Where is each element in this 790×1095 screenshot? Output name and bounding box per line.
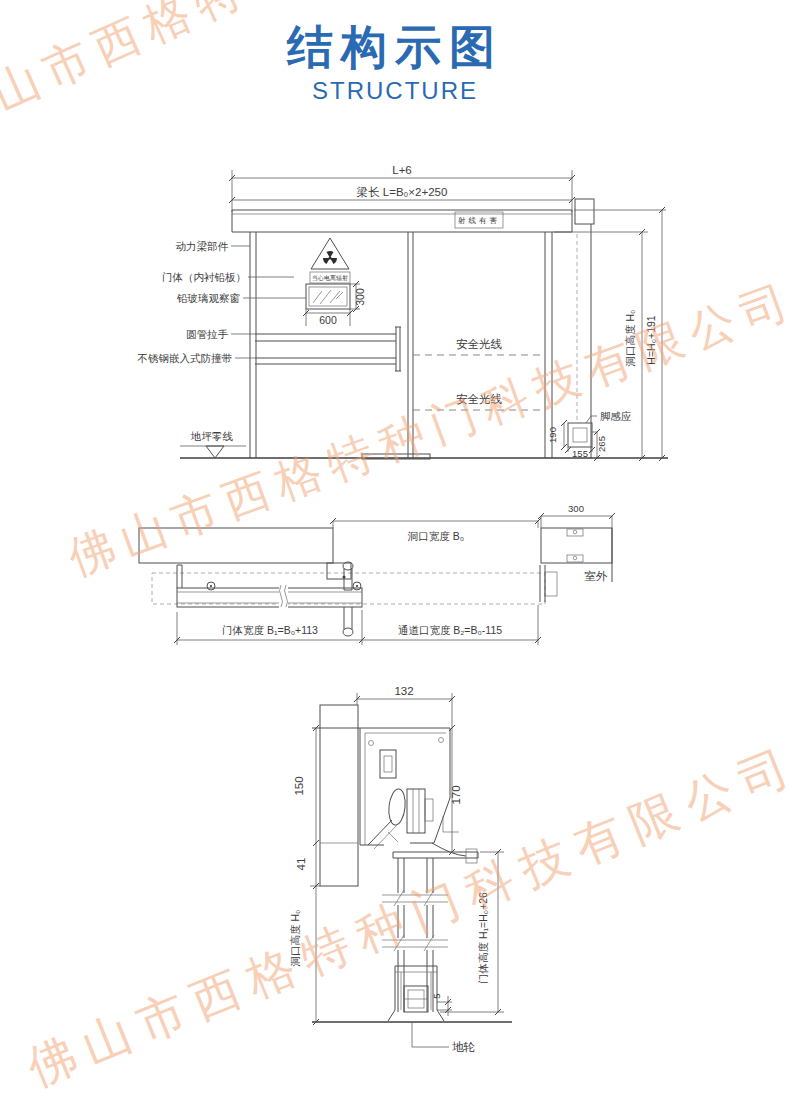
handle-label: 圆管拉手 [186,328,229,340]
page-subtitle: STRUCTURE [0,77,790,105]
dim-lintel-overlap: 41 [295,858,307,871]
dim-track-depth: 132 [394,685,413,697]
dim-floor-gap: 5 [431,993,442,998]
dim-opening-width: 洞口宽度 B₀ [407,530,464,542]
dim-passage-width: 通道口宽度 B₂=B₀-115 [398,624,502,636]
level-marker-icon [206,446,224,458]
floor-wheel-label: 地轮 [452,1041,476,1053]
wall-section [320,705,358,886]
guide-bolt-lower [343,607,353,636]
guide-bracket [327,563,351,579]
handle-assembly [255,327,401,371]
radiation-warning-text: 射线有害 [458,216,500,225]
radiation-sign-icon: 当心电离辐射 [310,238,350,283]
page-header: 结构示图 STRUCTURE [0,22,790,105]
elevation-view: L+6 梁长 L=B₀×2+250 射线有害 [137,164,669,461]
dim-sensor-height: 190 [547,427,558,443]
plan-view: 洞口宽度 B₀ 300 室外 [139,503,615,645]
end-stop-guide [540,565,557,602]
foot-sensor [568,416,597,447]
beam-end-bracket [575,199,594,224]
section-view: 132 [289,685,512,1053]
bumper-label: 不锈钢嵌入式防撞带 [137,352,233,364]
dim-beam-length: 梁长 L=B₀×2+250 [357,186,448,198]
door-body-label: 门体（内衬铅板） [162,271,246,283]
floor-zero-label: 地坪零线 [190,430,234,442]
dim-total-length: L+6 [392,164,412,176]
safety-beam-label-1: 安全光线 [456,338,503,350]
power-beam-label: 动力梁部件 [176,240,229,252]
safety-beam-label-2: 安全光线 [456,393,503,405]
outdoor-label: 室外 [585,570,609,582]
hanger-roller [387,788,407,825]
dim-opening-height: 洞口高度 H₀ [624,310,636,368]
page-title: 结构示图 [0,22,790,73]
wall-left [139,528,333,563]
dim-door-width: 门体宽度 B₁=B₀+113 [222,624,318,636]
dim-total-height: H=H₀+191 [645,315,657,364]
dim-opening-height-section: 洞口高度 H₀ [289,910,301,968]
dim-window-height: 300 [354,288,366,306]
foot-sensor-label: 脚感应 [600,410,632,422]
door-slab-section [382,858,448,1012]
dim-head-height: 170 [450,785,462,804]
dim-door-height: 门体高度 H₁=H₀+26 [477,892,489,984]
door-panel [250,232,430,459]
dim-window-width: 600 [319,314,337,326]
dim-wall-overlap: 300 [568,503,584,514]
dim-track-height: 150 [293,776,305,795]
observation-window [306,284,350,309]
structure-diagram-page: 佛山市西格特种门科技有限公司 佛山市西格特种门科技有限公司 佛山市西格特种门科技… [0,0,790,1095]
technical-drawing: L+6 梁长 L=B₀×2+250 射线有害 [0,0,790,1095]
radiation-caption: 当心电离辐射 [312,274,348,282]
dim-sensor-offset: 265 [596,436,607,452]
lead-glass-label: 铅玻璃观察窗 [176,292,240,304]
door-panel-plan [177,565,362,608]
